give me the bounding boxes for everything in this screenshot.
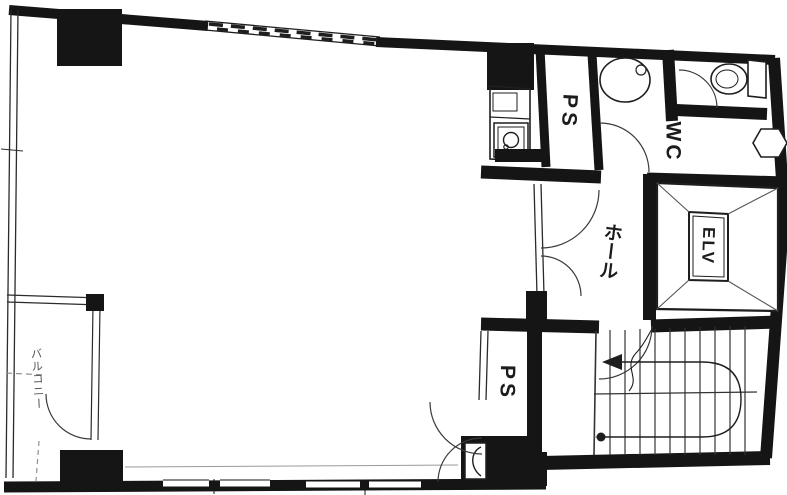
label-wc: WC — [662, 122, 683, 163]
basin-room-wall — [668, 50, 672, 121]
main-room — [30, 70, 460, 450]
basin-door-arc — [600, 123, 649, 172]
pillar-top-right — [487, 43, 534, 90]
top-window-hatch — [205, 21, 380, 46]
label-pipe-space-top: PS — [557, 93, 580, 130]
left-window-wall — [1, 10, 23, 478]
floor-edge-line — [125, 465, 458, 467]
stair-top-wall-right — [651, 322, 779, 326]
stair-bottom-wall — [541, 458, 770, 463]
floor-plan: PS WC ELV PS ホール バルコニー — [0, 0, 787, 495]
stair-treads — [594, 326, 757, 455]
balcony-corner-block — [86, 294, 104, 311]
hatch-fixture — [465, 443, 486, 479]
hall — [526, 184, 599, 328]
hall-double-door — [541, 190, 599, 296]
floor-plan-drawing — [0, 0, 787, 495]
window-hexagon — [753, 129, 787, 157]
label-balcony: バルコニー — [29, 347, 44, 410]
sink-basin — [493, 93, 517, 111]
wall-below-ps — [481, 172, 601, 177]
stair-direction-arrow — [597, 329, 742, 442]
elv-left-wall — [643, 174, 656, 320]
label-pipe-space-bottom: PS — [496, 365, 518, 401]
landing-line — [594, 392, 757, 394]
toilet-room-wall — [676, 110, 767, 114]
label-elevator: ELV — [699, 227, 718, 265]
mullion-tick — [1, 149, 23, 151]
wc-area — [600, 50, 787, 183]
pillar-top-left — [57, 9, 122, 66]
top-wall-right — [376, 42, 775, 60]
wash-basin — [600, 58, 650, 102]
stairwell — [594, 326, 757, 455]
toilet — [711, 60, 766, 98]
